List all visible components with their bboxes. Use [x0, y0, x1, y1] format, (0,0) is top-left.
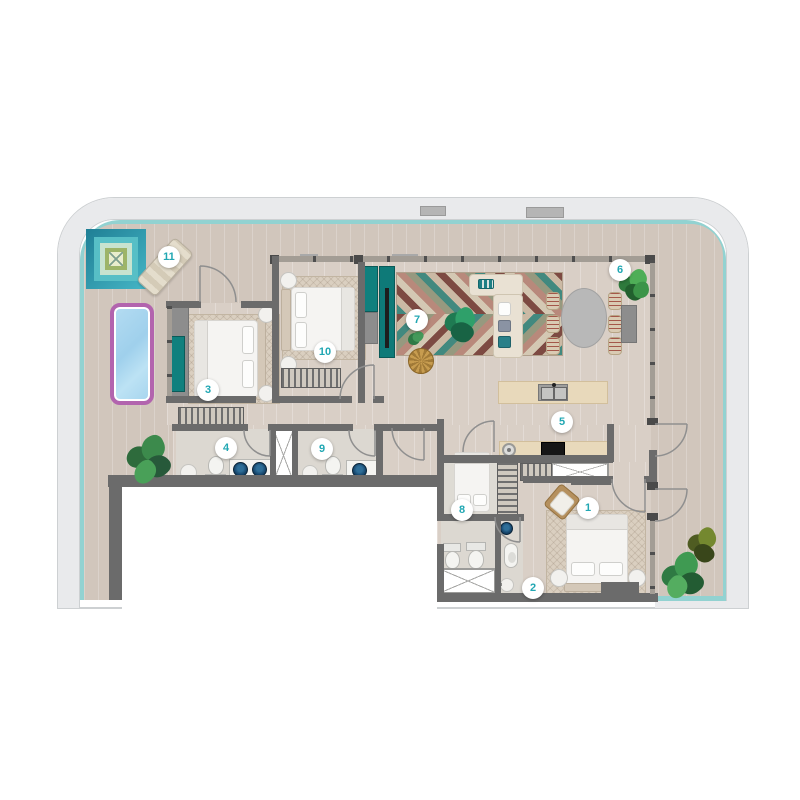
- room-badge-5[interactable]: 5: [551, 411, 573, 433]
- room-badge-4[interactable]: 4: [215, 437, 237, 459]
- door-bathroom-2: [495, 517, 520, 542]
- plant-terrace-right-dark: [686, 528, 720, 566]
- room-badge-6[interactable]: 6: [609, 259, 631, 281]
- room-badge-3[interactable]: 3: [197, 379, 219, 401]
- room-badge-10[interactable]: 10: [314, 341, 336, 363]
- door-bedroom-3-terrace: [200, 266, 236, 302]
- door-bedroom-1: [612, 479, 645, 512]
- room-badge-2[interactable]: 2: [522, 577, 544, 599]
- room-badge-1[interactable]: 1: [577, 497, 599, 519]
- room-badge-7[interactable]: 7: [406, 309, 428, 331]
- door-hall: [392, 428, 424, 460]
- door-bathroom-4: [244, 430, 270, 456]
- door-terrace-east-1: [655, 424, 687, 456]
- floorplan-canvas: 1 2 3 4 5 6 7 8 9 10 11: [0, 0, 800, 800]
- door-kitchen: [463, 421, 494, 452]
- room-badge-11[interactable]: 11: [158, 246, 180, 268]
- door-bathroom-9: [349, 430, 375, 456]
- door-bedroom-10: [340, 365, 374, 399]
- room-badge-8[interactable]: 8: [451, 499, 473, 521]
- plant-terrace-left: [127, 436, 171, 484]
- door-terrace-east-2: [655, 489, 687, 521]
- door-swings-layer: [0, 0, 800, 800]
- room-badge-9[interactable]: 9: [311, 438, 333, 460]
